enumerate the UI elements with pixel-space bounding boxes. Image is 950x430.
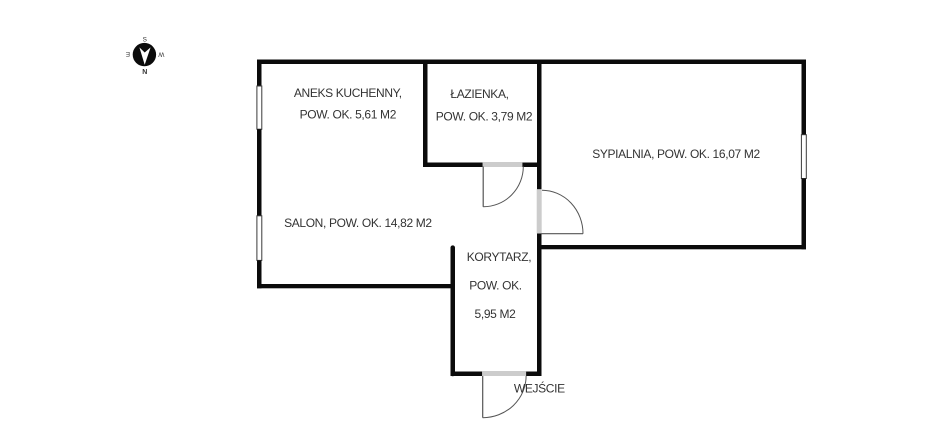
svg-text:ANEKS KUCHENNY,: ANEKS KUCHENNY, [294, 86, 402, 100]
svg-text:SYPIALNIA, POW. OK. 16,07 M2: SYPIALNIA, POW. OK. 16,07 M2 [592, 147, 760, 161]
svg-text:S: S [143, 37, 147, 44]
svg-text:E: E [126, 50, 130, 57]
svg-text:W: W [157, 50, 164, 57]
svg-text:5,95 M2: 5,95 M2 [475, 307, 517, 321]
svg-text:SALON, POW. OK. 14,82 M2: SALON, POW. OK. 14,82 M2 [284, 216, 432, 230]
svg-text:N: N [142, 69, 147, 76]
svg-text:ŁAZIENKA,: ŁAZIENKA, [450, 87, 508, 101]
svg-text:POW. OK. 5,61 M2: POW. OK. 5,61 M2 [300, 108, 397, 122]
svg-text:POW. OK.: POW. OK. [469, 279, 522, 293]
svg-text:WEJŚCIE: WEJŚCIE [514, 380, 565, 395]
svg-text:KORYTARZ,: KORYTARZ, [467, 250, 531, 264]
svg-text:POW. OK. 3,79 M2: POW. OK. 3,79 M2 [436, 110, 533, 124]
